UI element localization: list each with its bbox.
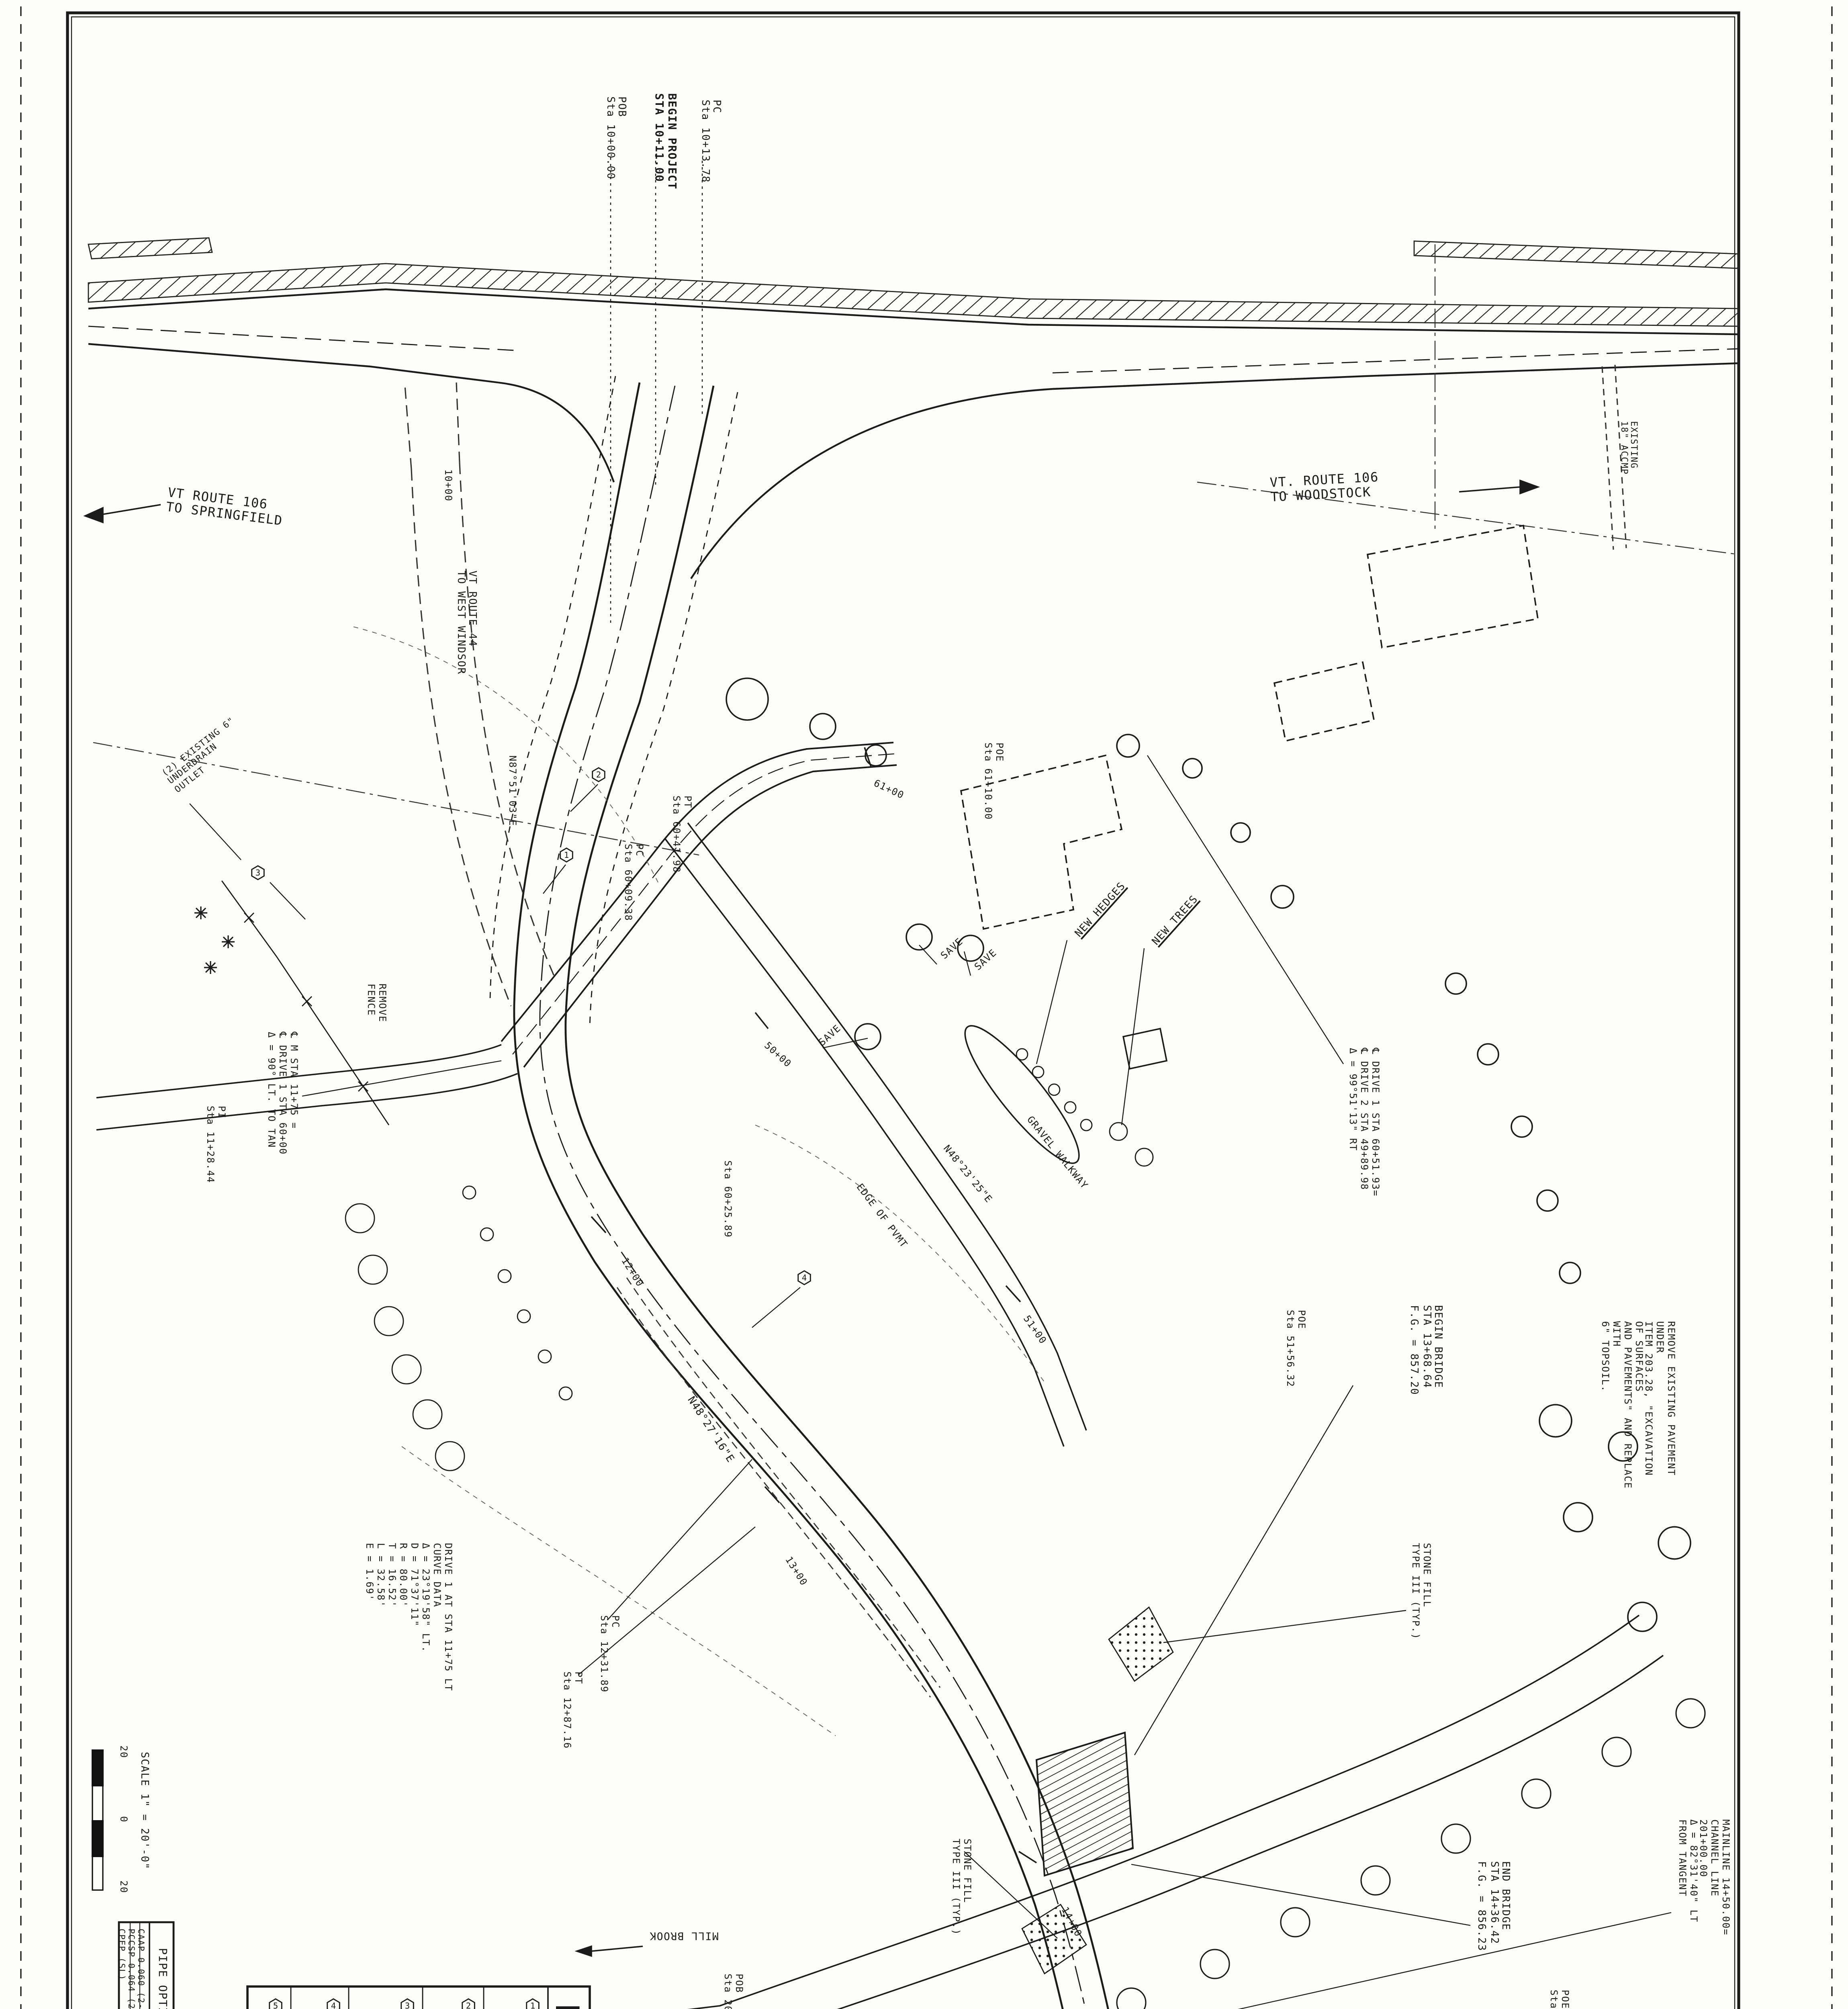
svg-text:4: 4 (331, 2001, 336, 2009)
buildings (961, 526, 1538, 1069)
svg-text:2: 2 (466, 2001, 471, 2009)
label-pc-top: PC Sta 10+13.78 (698, 100, 722, 183)
label-stone-fill-right: STONE FILL TYPE III (TYP.) (1408, 1543, 1430, 1640)
route-106-lines (88, 289, 1739, 579)
label-mainline-equation: MAINLINE 14+50.00= CHANNEL LINE 201+00.0… (1674, 1819, 1729, 1938)
existing-road-dashed (405, 383, 556, 1006)
table-borders (67, 1922, 590, 2009)
keynote-hex-1: 1 (525, 1998, 540, 2009)
label-sta-10-00: 10+00 (441, 469, 452, 501)
label-m-sta-equation: ℄ M STA 11+75 = ℄ DRIVE 1 STA 60+00 Δ = … (264, 1032, 297, 1155)
keynote-hex-2: 2 (461, 1998, 476, 2009)
pipe-option-pccsp: PCCSP 0.064 (2-2/3 x 1/2) (125, 1929, 135, 2009)
drive-1-lines (501, 743, 897, 1067)
scale-tick-20b: 20 (116, 1880, 127, 1893)
label-poe-5156: POE Sta 51+56.32 (1283, 1310, 1305, 1387)
keynote-hex-5: 5 (268, 1998, 283, 2009)
hatched-pavement-bands (88, 238, 1739, 326)
label-pc-6009: PC Sta 60+09.38 (621, 844, 643, 921)
plan-hex-4: 4 (797, 1270, 812, 1286)
contours (354, 627, 1045, 1736)
label-end-bridge: END BRIDGE STA 14+36.42 F.G. = 856.23 (1475, 1861, 1511, 1951)
label-rte44: VT ROUTE 44 TO WEST WINDSOR (454, 571, 477, 675)
svg-text:3: 3 (405, 2001, 410, 2009)
scale-text: SCALE 1" = 20'-0" (137, 1752, 149, 1870)
scale-tick-0: 0 (116, 1816, 127, 1823)
label-pob-200: POB Sta 200+00.00 (720, 1974, 742, 2009)
row-lines (93, 244, 1739, 855)
plan-hex-2: 2 (591, 767, 606, 783)
label-sta-6025: Sta 60+25.89 (720, 1160, 731, 1238)
svg-text:2: 2 (596, 770, 601, 779)
pipe-option-caap: CAAP 0.060 (2-2/3 x 1/2) (135, 1929, 145, 2009)
drive-2-lines (665, 823, 1093, 1446)
label-remove-pavement-note: REMOVE EXISTING PAVEMENT UNDER ITEM 203.… (1598, 1321, 1674, 1495)
label-pi-1128: PI Sta 11+28.44 (203, 1106, 225, 1183)
hedges (345, 1049, 1153, 1471)
pipe-options-header: PIPE OPTIONS (154, 1948, 167, 2009)
pipe-option-cpep: CPEP (SL) (116, 1929, 125, 1980)
keynote-hex-4: 4 (326, 1998, 341, 2009)
label-arrows (85, 481, 1538, 1956)
label-begin-bridge: BEGIN BRIDGE STA 13+68.64 F.G. = 857.20 (1407, 1305, 1443, 1395)
marsh-symbols (194, 906, 235, 974)
svg-text:5: 5 (273, 2001, 278, 2009)
leaders (190, 154, 1671, 2009)
label-pt-6041: PT Sta 60+41.98 (669, 796, 691, 873)
label-poe-6110: POE Sta 61+10.00 (981, 743, 1003, 820)
label-rte106-woodstock: VT. ROUTE 106 TO WOODSTOCK (1269, 470, 1380, 505)
label-remove-fence: REMOVE FENCE (364, 984, 386, 1022)
keynote-hex-3: 3 (400, 1998, 415, 2009)
label-pob-top: POB Sta 10+00.00 (603, 96, 627, 180)
keynotes-title: DRAINAGE KEYNOTES (548, 2004, 585, 2009)
svg-text:1: 1 (564, 850, 569, 860)
label-drive-equation: ℄ DRIVE 1 STA 60+51.93= ℄ DRIVE 2 STA 49… (1346, 1048, 1379, 1197)
label-curve-data: DRIVE 1 AT STA 11+75 LT CURVE DATA Δ = 2… (363, 1543, 453, 1691)
label-begin-project: BEGIN PROJECT STA 10+11.00 (651, 93, 677, 190)
trees (726, 678, 1691, 1631)
scanned-plan-sheet: PC Sta 10+13.78 BEGIN PROJECT STA 10+11.… (0, 0, 1848, 2009)
scale-tick-20a: 20 (116, 1745, 127, 1758)
label-existing-accmp: EXISTING 18" ACCMP (1617, 421, 1637, 475)
svg-text:1: 1 (530, 2001, 535, 2009)
label-stone-fill-left: STONE FILL TYPE III (TYP.) (949, 1839, 971, 1935)
plan-linework (0, 0, 1848, 2009)
label-mill-brook: MILL BROOK (649, 1929, 719, 1941)
svg-text:4: 4 (802, 1273, 807, 1283)
label-poe-202: POE Sta 202+00.00 (1546, 1990, 1568, 2009)
svg-text:3: 3 (256, 868, 260, 878)
plan-hex-1: 1 (559, 847, 574, 863)
label-bearing-106: N87°51'03"E (505, 755, 516, 827)
west-drive-lines (96, 1045, 517, 1130)
plan-hex-3: 3 (251, 865, 265, 881)
label-pt-1287: PT Sta 12+87.16 (560, 1671, 582, 1749)
sheet: PC Sta 10+13.78 BEGIN PROJECT STA 10+11.… (0, 0, 1848, 2009)
scale-bar (92, 1750, 103, 1890)
label-pc-1231: PC Sta 12+31.89 (597, 1615, 619, 1693)
